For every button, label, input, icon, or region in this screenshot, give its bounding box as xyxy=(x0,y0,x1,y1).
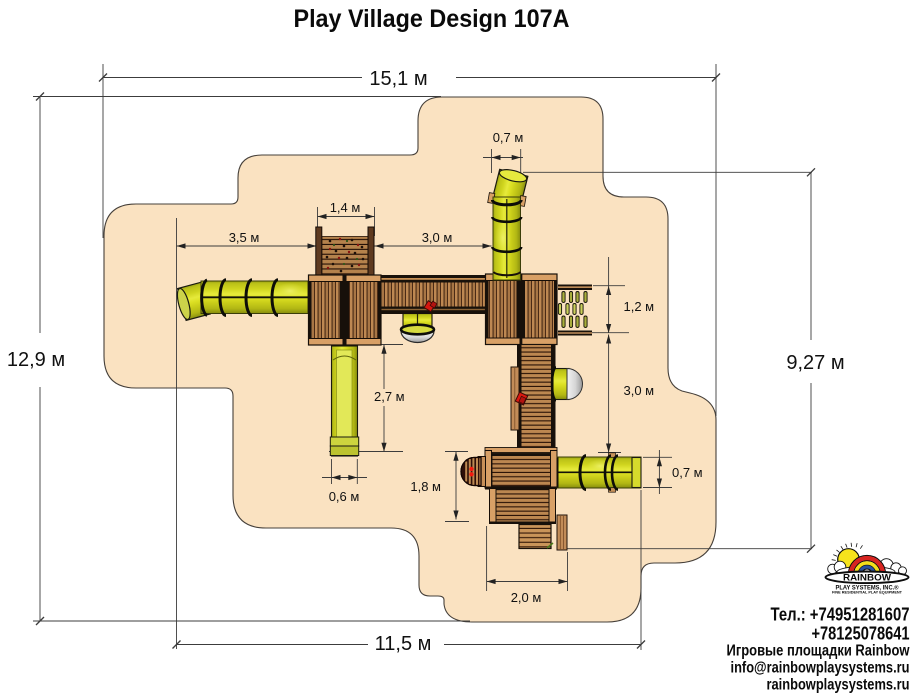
svg-text:3,0 м: 3,0 м xyxy=(624,383,655,398)
svg-text:0,7 м: 0,7 м xyxy=(672,465,703,480)
svg-text:+78125078641: +78125078641 xyxy=(812,624,910,644)
svg-text:0,7 м: 0,7 м xyxy=(493,130,524,145)
svg-text:11,5 м: 11,5 м xyxy=(375,633,432,655)
svg-text:1,4 м: 1,4 м xyxy=(330,200,361,215)
svg-text:Игровые площадки Rainbow: Игровые площадки Rainbow xyxy=(727,643,911,660)
svg-text:0,6 м: 0,6 м xyxy=(329,489,360,504)
svg-text:2,7 м: 2,7 м xyxy=(374,389,405,404)
svg-text:RAINBOW: RAINBOW xyxy=(843,573,892,583)
svg-text:FINE RESIDENTIAL PLAY EQUIPMEN: FINE RESIDENTIAL PLAY EQUIPMENT xyxy=(832,591,903,595)
svg-text:2,0 м: 2,0 м xyxy=(511,590,542,605)
svg-text:Play Village Design 107A: Play Village Design 107A xyxy=(294,5,570,33)
svg-text:Тел.: +74951281607: Тел.: +74951281607 xyxy=(771,605,910,625)
svg-text:1,8 м: 1,8 м xyxy=(410,479,441,494)
svg-text:info@rainbowplaysystems.ru: info@rainbowplaysystems.ru xyxy=(731,660,910,677)
svg-text:rainbowplaysystems.ru: rainbowplaysystems.ru xyxy=(767,677,910,694)
svg-text:1,2 м: 1,2 м xyxy=(624,299,655,314)
svg-text:9,27 м: 9,27 м xyxy=(786,352,844,374)
svg-text:3,5 м: 3,5 м xyxy=(229,230,260,245)
svg-text:12,9 м: 12,9 м xyxy=(7,349,65,371)
svg-text:15,1 м: 15,1 м xyxy=(369,68,427,90)
svg-text:3,0 м: 3,0 м xyxy=(422,230,453,245)
